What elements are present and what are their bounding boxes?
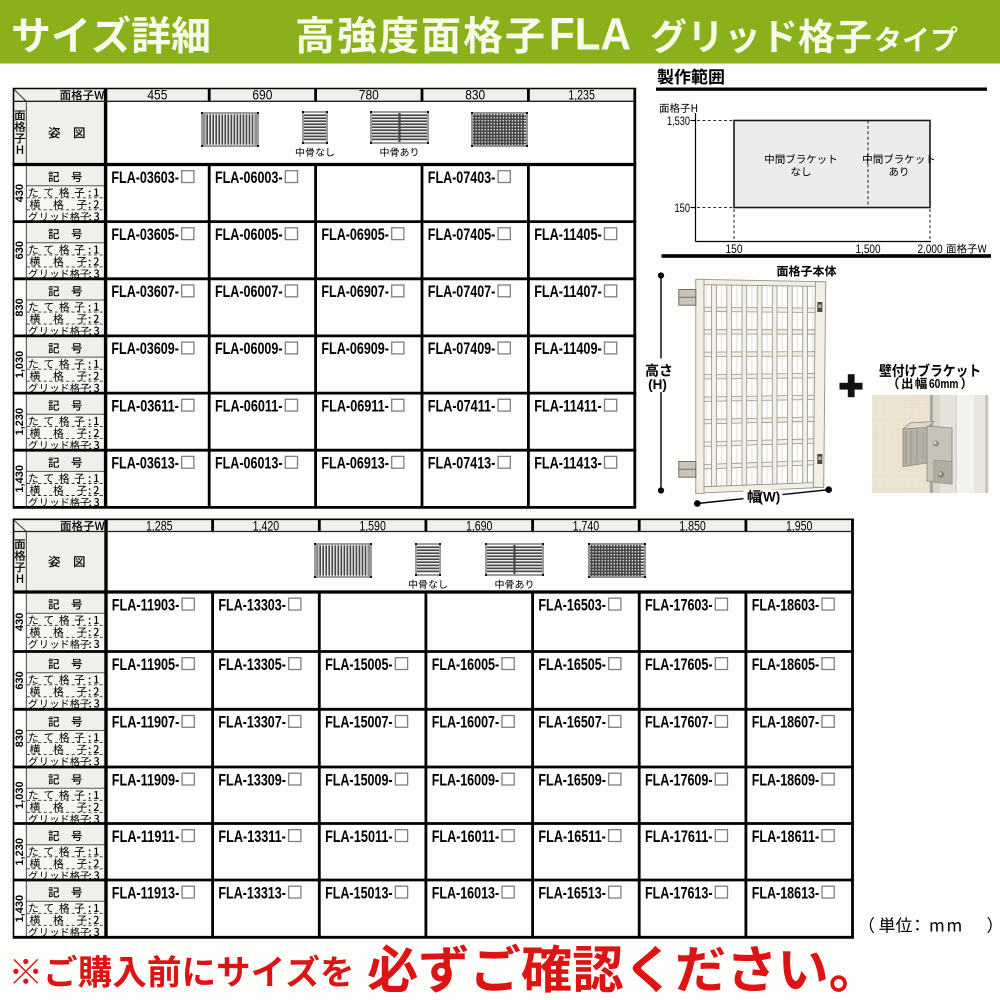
svg-text:FLA-16513-: FLA-16513- [538,883,606,902]
svg-text:FLA-11907-: FLA-11907- [112,713,180,732]
svg-text:FLA-15011-: FLA-15011- [325,827,393,846]
svg-text:FLA-06905-: FLA-06905- [321,225,389,244]
svg-text:FLA-18605-: FLA-18605- [752,655,820,674]
svg-text:FLA-16005-: FLA-16005- [432,655,500,674]
svg-text:150: 150 [726,244,743,256]
svg-text:1,430: 1,430 [14,895,26,923]
svg-text:FLA-16007-: FLA-16007- [432,713,500,732]
svg-text:2,000: 2,000 [918,244,943,256]
svg-text:1,030: 1,030 [14,781,26,809]
svg-text:FLA-03605-: FLA-03605- [111,225,178,244]
svg-text:FLA-06003-: FLA-06003- [215,168,283,187]
svg-text:FLA-16013-: FLA-16013- [432,883,500,902]
svg-text:FLA-07407-: FLA-07407- [428,282,496,301]
svg-text:FLA-11407-: FLA-11407- [534,282,602,301]
svg-text:60mm: 60mm [929,377,959,391]
svg-text:FLA-13311-: FLA-13311- [218,827,286,846]
svg-text:FLA-17605-: FLA-17605- [645,655,713,674]
svg-text:FLA-16507-: FLA-16507- [538,713,606,732]
svg-text:FLA-06913-: FLA-06913- [321,454,389,473]
svg-text:(W): (W) [759,490,781,505]
svg-text:FLA-06009-: FLA-06009- [215,339,283,358]
svg-text:FLA-11413-: FLA-11413- [534,454,602,473]
svg-text:FLA-06013-: FLA-06013- [215,454,283,473]
svg-text:FLA-13305-: FLA-13305- [218,655,286,674]
svg-text:FLA-06007-: FLA-06007- [215,282,283,301]
svg-text:1,500: 1,500 [856,244,881,256]
svg-text:1,030: 1,030 [14,351,26,379]
svg-text:FLA-03603-: FLA-03603- [111,168,178,187]
svg-text:FLA-16505-: FLA-16505- [538,655,606,674]
svg-text:FLA-15013-: FLA-15013- [325,883,393,902]
svg-text:FLA-15007-: FLA-15007- [325,713,393,732]
svg-text:FLA-16009-: FLA-16009- [432,770,500,789]
svg-text:1,430: 1,430 [14,465,26,493]
svg-text:FLA-11903-: FLA-11903- [112,595,180,614]
svg-text:830: 830 [14,298,26,316]
svg-text:FLA-18609-: FLA-18609- [752,770,820,789]
svg-text:FLA-13307-: FLA-13307- [218,713,286,732]
svg-text:FLA-13309-: FLA-13309- [218,770,286,789]
svg-text:FLA-06011-: FLA-06011- [215,396,283,415]
svg-text:(H): (H) [648,377,667,392]
svg-text:FLA-03611-: FLA-03611- [111,396,178,415]
svg-text:FLA-18611-: FLA-18611- [752,827,820,846]
svg-text:FLA-18607-: FLA-18607- [752,713,820,732]
svg-text:FLA-16511-: FLA-16511- [538,827,606,846]
svg-text:FLA-17613-: FLA-17613- [645,883,713,902]
svg-text:FLA-15005-: FLA-15005- [325,655,393,674]
svg-text:FLA-03607-: FLA-03607- [111,282,178,301]
svg-text:FLA-18613-: FLA-18613- [752,883,820,902]
svg-text:FLA-06907-: FLA-06907- [321,282,389,301]
svg-text:FLA-15009-: FLA-15009- [325,770,393,789]
svg-text:FLA-17607-: FLA-17607- [645,713,713,732]
svg-text:FLA-13303-: FLA-13303- [218,595,286,614]
svg-text:FLA-17609-: FLA-17609- [645,770,713,789]
svg-text:FLA-11405-: FLA-11405- [534,225,602,244]
svg-text:430: 430 [14,613,26,631]
svg-text:1,530: 1,530 [667,116,690,128]
svg-text:FLA-06909-: FLA-06909- [321,339,389,358]
svg-text:830: 830 [14,729,26,747]
svg-text:FLA-18603-: FLA-18603- [752,595,820,614]
svg-text:FLA-17611-: FLA-17611- [645,827,713,846]
svg-text:FLA-03609-: FLA-03609- [111,339,178,358]
svg-text:FLA-07403-: FLA-07403- [428,168,496,187]
svg-text:FLA-17603-: FLA-17603- [645,595,713,614]
svg-text:FLA-06911-: FLA-06911- [321,396,389,415]
svg-text:1,230: 1,230 [14,408,26,436]
svg-text:FLA-16011-: FLA-16011- [432,827,500,846]
svg-text:FLA-11909-: FLA-11909- [112,770,180,789]
svg-text:FLA-07409-: FLA-07409- [428,339,496,358]
svg-text:FLA-07411-: FLA-07411- [428,396,496,415]
svg-text:FLA-06005-: FLA-06005- [215,225,283,244]
svg-text:630: 630 [14,671,26,689]
svg-text:1,230: 1,230 [14,838,26,866]
svg-text:FLA-16503-: FLA-16503- [538,595,606,614]
svg-text:630: 630 [14,241,26,259]
svg-text:FLA-03613-: FLA-03613- [111,454,178,473]
svg-text:FLA-07413-: FLA-07413- [428,454,496,473]
svg-text:FLA-11411-: FLA-11411- [534,396,602,415]
svg-text:150: 150 [675,203,691,215]
svg-text:FLA-11911-: FLA-11911- [112,827,180,846]
svg-text:FLA-13313-: FLA-13313- [218,883,286,902]
svg-text:FLA-16509-: FLA-16509- [538,770,606,789]
svg-text:FLA: FLA [549,9,631,60]
svg-text:FLA-07405-: FLA-07405- [428,225,496,244]
svg-text:FLA-11905-: FLA-11905- [112,655,180,674]
svg-text:430: 430 [14,184,26,202]
svg-text:FLA-11913-: FLA-11913- [112,883,180,902]
svg-text:FLA-11409-: FLA-11409- [534,339,602,358]
